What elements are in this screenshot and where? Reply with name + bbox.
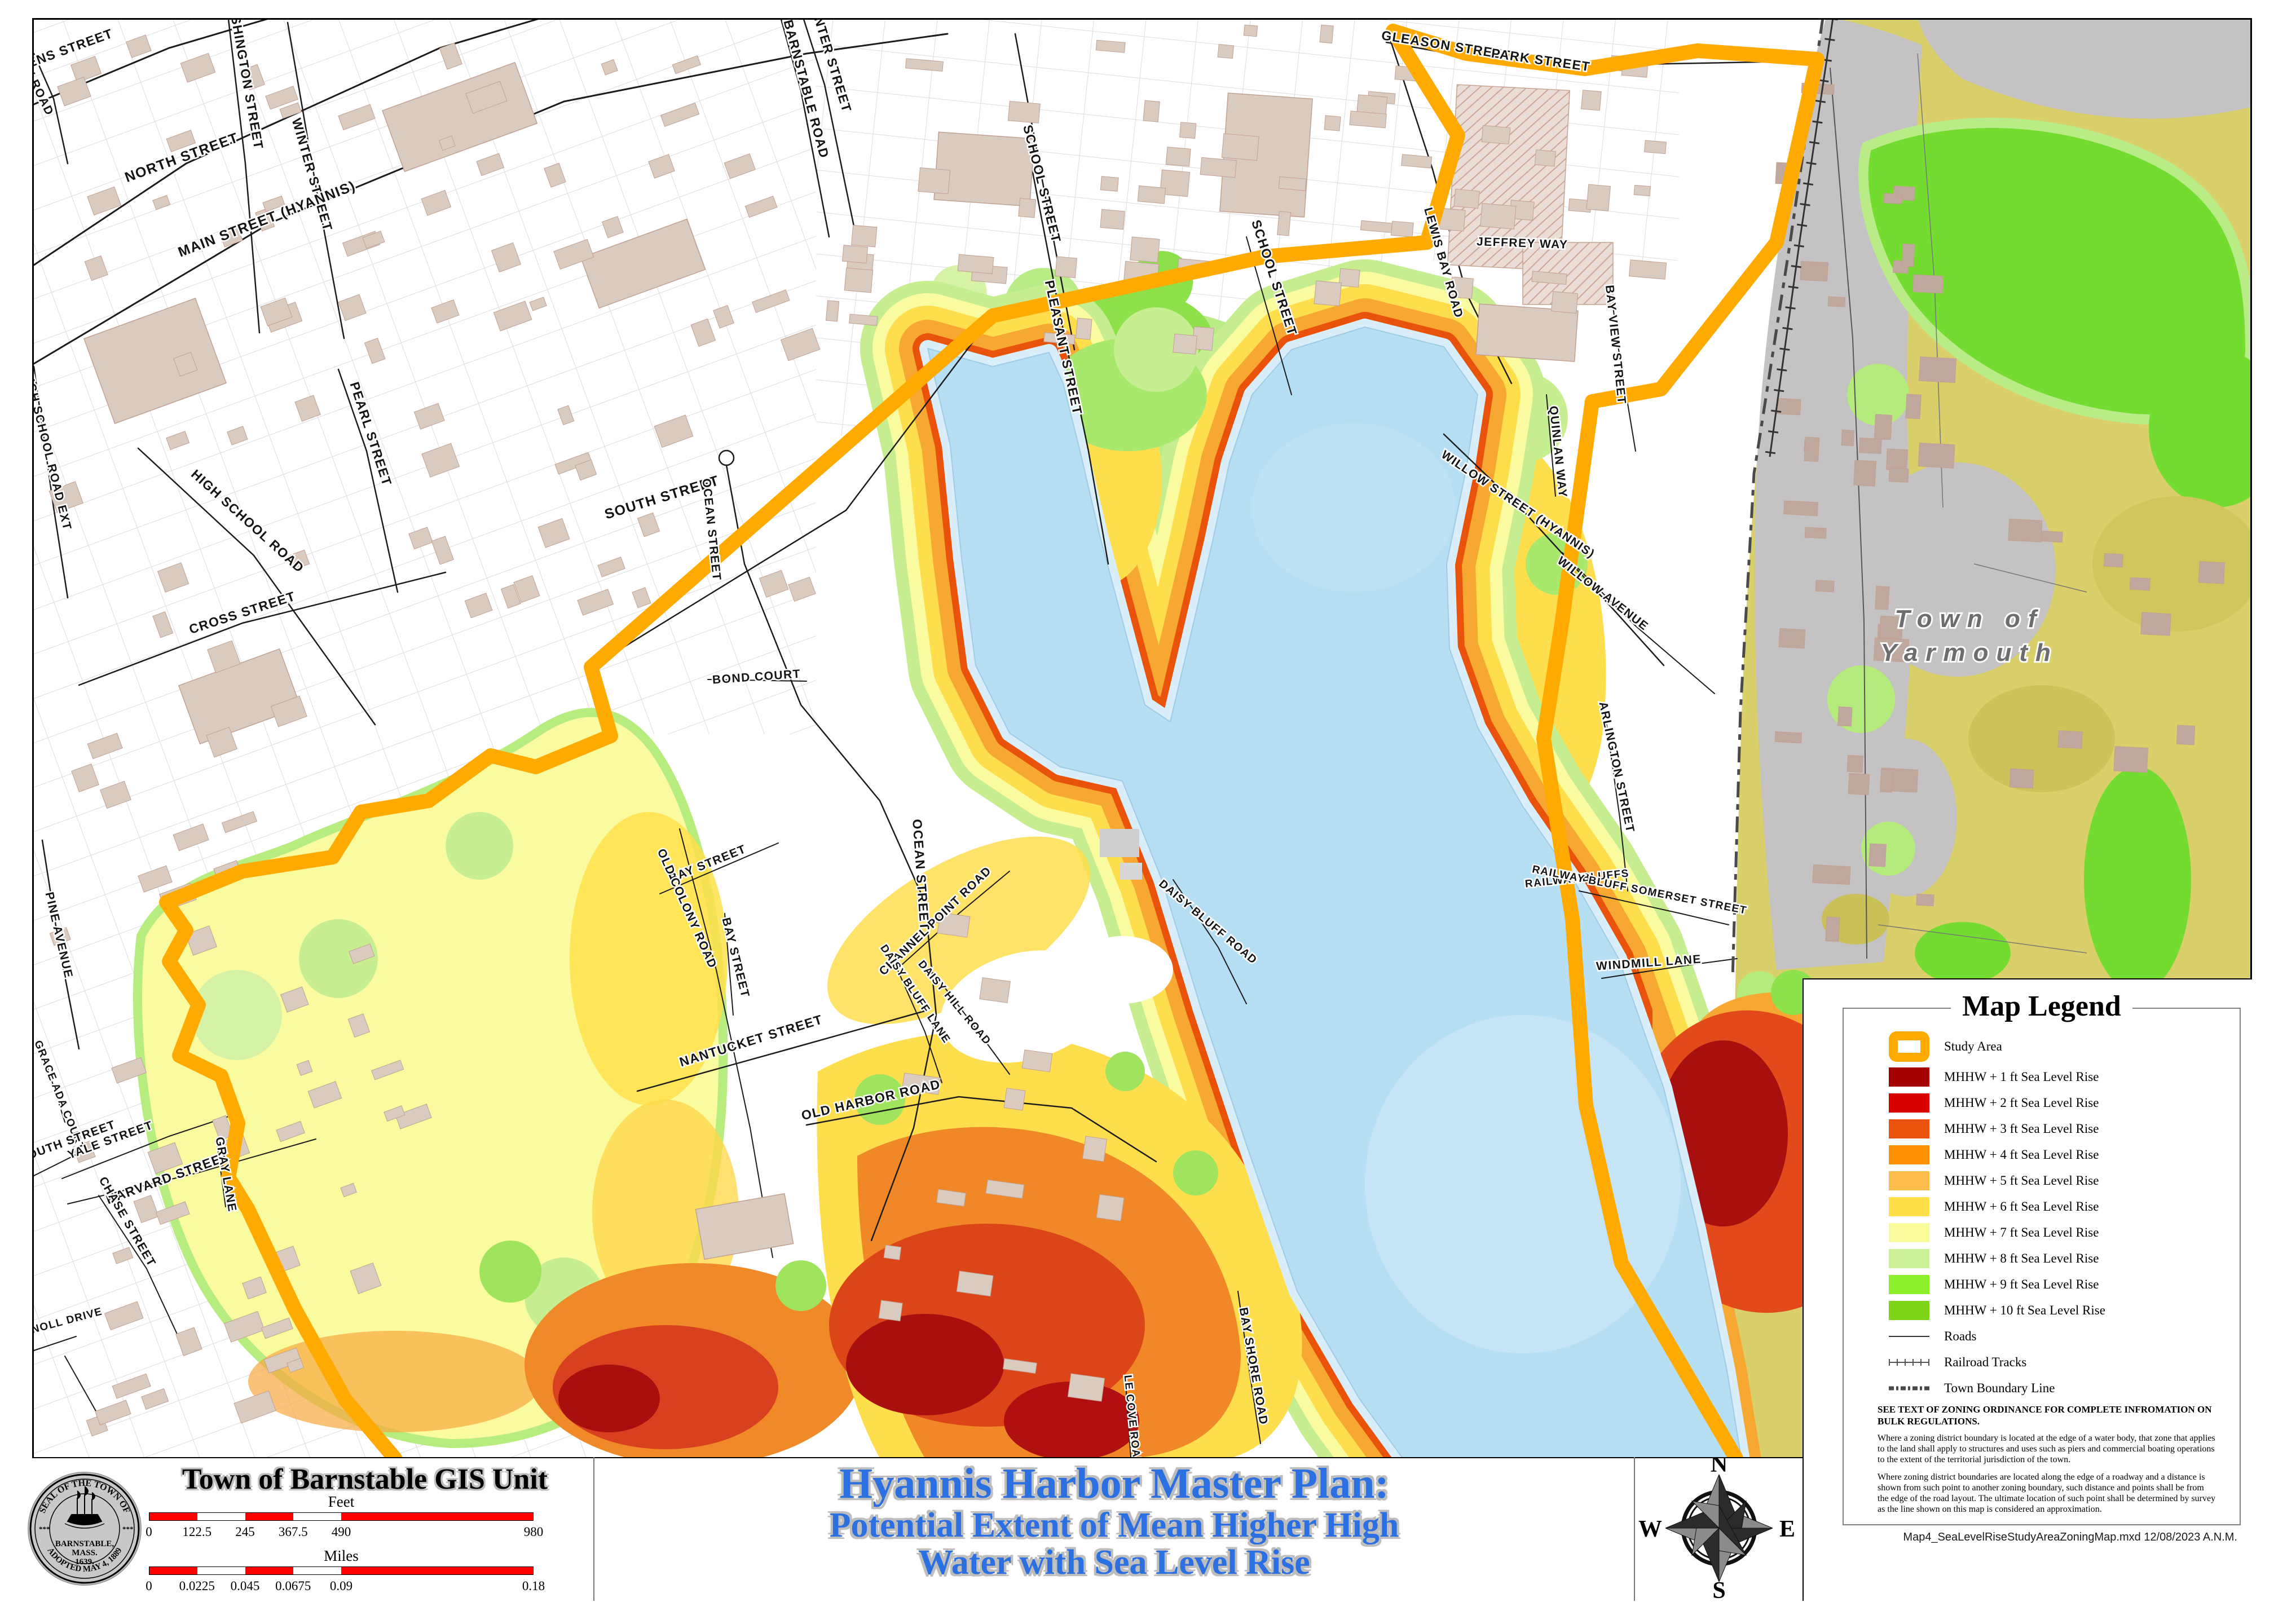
legend-swatch-fill xyxy=(1889,1067,1929,1087)
legend-item-label: MHHW + 9 ft Sea Level Rise xyxy=(1944,1277,2099,1292)
building xyxy=(1143,100,1160,122)
legend-swatch-fill xyxy=(1889,1223,1929,1242)
legend-item-label: MHHW + 7 ft Sea Level Rise xyxy=(1944,1225,2099,1240)
building xyxy=(1815,580,1834,592)
map-title-line-3: Water with Sea Level Rise xyxy=(594,1544,1634,1581)
scalebar-segment xyxy=(341,1567,533,1574)
legend-item-label: MHHW + 6 ft Sea Level Rise xyxy=(1944,1199,2099,1214)
building xyxy=(1314,281,1341,306)
building xyxy=(1100,209,1125,230)
gis-unit-panel: Town of Barnstable GIS Unit SEAL OF THE … xyxy=(32,1457,593,1601)
scalebar-segment xyxy=(341,1513,533,1520)
building xyxy=(1629,260,1667,279)
building xyxy=(1645,140,1667,154)
compass-n: N xyxy=(1711,1457,1727,1477)
building xyxy=(879,1300,902,1321)
legend-item-label: MHHW + 2 ft Sea Level Rise xyxy=(1944,1096,2099,1110)
legend-item: Study Area xyxy=(1844,1029,2240,1064)
town-area-label: Yarmouth xyxy=(1880,639,2059,667)
legend-swatch-fill xyxy=(1889,1275,1929,1294)
legend-swatch-fill xyxy=(1889,1249,1929,1268)
seal-line-2: MASS. xyxy=(72,1548,98,1557)
building xyxy=(1076,318,1092,339)
building xyxy=(1218,45,1233,59)
building xyxy=(1277,211,1291,236)
building xyxy=(980,978,1010,1003)
building xyxy=(1887,449,1908,471)
scalebar-segment xyxy=(197,1513,245,1520)
building xyxy=(1869,844,1887,867)
legend-swatch-townline xyxy=(1889,1383,1929,1394)
building xyxy=(1779,629,1805,648)
building xyxy=(2104,553,2123,567)
legend-item-label: MHHW + 1 ft Sea Level Rise xyxy=(1944,1070,2099,1084)
building xyxy=(1880,769,1893,792)
scalebar-tick-label: 0.045 xyxy=(231,1579,260,1594)
building xyxy=(2176,725,2195,745)
legend-item-label: Town Boundary Line xyxy=(1944,1381,2055,1396)
legend-swatch-fill xyxy=(1889,1145,1929,1164)
building xyxy=(1581,90,1602,111)
scalebar-miles xyxy=(149,1566,534,1575)
legend-item: MHHW + 7 ft Sea Level Rise xyxy=(1844,1220,2240,1246)
building xyxy=(1082,1136,1107,1162)
building xyxy=(1826,917,1840,942)
legend-title: Map Legend xyxy=(1951,990,2132,1023)
building xyxy=(844,268,872,293)
building xyxy=(1916,894,1934,906)
building xyxy=(2008,519,2042,542)
scalebar-tick-label: 0.0675 xyxy=(275,1579,311,1594)
scalebar-tick-label: 0.0225 xyxy=(179,1579,215,1594)
building xyxy=(884,1245,901,1260)
building xyxy=(1222,134,1259,161)
legend-item-label: MHHW + 8 ft Sea Level Rise xyxy=(1944,1251,2099,1266)
building xyxy=(843,245,868,263)
building xyxy=(1008,101,1040,123)
building xyxy=(957,1271,993,1296)
legend-item: MHHW + 5 ft Sea Level Rise xyxy=(1844,1168,2240,1194)
legend-item-label: MHHW + 10 ft Sea Level Rise xyxy=(1944,1303,2105,1318)
building xyxy=(1828,297,1845,307)
building xyxy=(1859,438,1881,454)
legend-item: Roads xyxy=(1844,1323,2240,1349)
scalebar-tick-label: 0 xyxy=(146,1525,152,1539)
compass-w: W xyxy=(1638,1516,1662,1542)
building xyxy=(1279,176,1306,191)
legend-swatch-fill xyxy=(1889,1093,1929,1113)
building xyxy=(1902,244,1915,267)
building xyxy=(1339,268,1360,287)
building xyxy=(1847,755,1863,772)
building xyxy=(2114,747,2148,773)
building xyxy=(1854,460,1876,486)
legend-item: MHHW + 2 ft Sea Level Rise xyxy=(1844,1090,2240,1116)
building xyxy=(1480,204,1516,230)
building xyxy=(958,254,994,273)
building xyxy=(1096,40,1125,52)
scalebar-tick-label: 0.09 xyxy=(330,1579,352,1594)
scalebar-segment xyxy=(245,1513,293,1520)
building xyxy=(1130,237,1160,262)
building xyxy=(1402,155,1432,168)
building xyxy=(1919,357,1956,383)
building xyxy=(826,301,839,321)
building xyxy=(1841,430,1854,445)
compass-star xyxy=(1665,1475,1773,1582)
building xyxy=(1482,125,1510,144)
building xyxy=(1180,122,1196,139)
compass-e: E xyxy=(1779,1516,1795,1542)
legend-note-heading: SEE TEXT OF ZONING ORDINANCE FOR COMPLET… xyxy=(1878,1404,2216,1427)
legend-swatch-fill xyxy=(1889,1197,1929,1216)
legend-swatch-road xyxy=(1889,1331,1929,1342)
scalebar-tick-label: 122.5 xyxy=(182,1525,211,1539)
scalebar-segment xyxy=(149,1513,197,1520)
building xyxy=(1889,468,1909,482)
building xyxy=(1800,261,1828,281)
legend-item: MHHW + 4 ft Sea Level Rise xyxy=(1844,1142,2240,1168)
building xyxy=(1784,501,1818,516)
legend-items: Study AreaMHHW + 1 ft Sea Level RiseMHHW… xyxy=(1844,1029,2240,1401)
scalebar-tick-label: 245 xyxy=(235,1525,255,1539)
building xyxy=(852,225,877,247)
building xyxy=(1535,150,1555,166)
seal-stars-right: *** xyxy=(122,1525,134,1533)
legend-notes: SEE TEXT OF ZONING ORDINANCE FOR COMPLET… xyxy=(1878,1404,2216,1521)
building xyxy=(1805,527,1826,539)
building xyxy=(2198,562,2224,584)
scalebar-feet-unit: Feet xyxy=(149,1493,534,1511)
legend-item-label: MHHW + 5 ft Sea Level Rise xyxy=(1944,1173,2099,1188)
building xyxy=(1813,865,1850,885)
scalebar-tick-label: 0 xyxy=(146,1579,152,1594)
legend-note-1: Where a zoning district boundary is loca… xyxy=(1878,1433,2216,1465)
legend-item: MHHW + 8 ft Sea Level Rise xyxy=(1844,1246,2240,1272)
map-document-footer: Map4_SeaLevelRiseStudyAreaZoningMap.mxd … xyxy=(1903,1531,2237,1544)
legend-swatch-rail xyxy=(1889,1357,1929,1368)
legend-item: MHHW + 6 ft Sea Level Rise xyxy=(1844,1194,2240,1220)
seal-line-3: 1639. xyxy=(75,1557,94,1566)
legend-item-label: MHHW + 4 ft Sea Level Rise xyxy=(1944,1148,2099,1162)
scalebar-tick-label: 367.5 xyxy=(279,1525,308,1539)
building xyxy=(1100,176,1118,192)
legend-note-2: Where zoning district boundaries are loc… xyxy=(1878,1472,2216,1515)
building xyxy=(918,167,950,194)
building xyxy=(1913,275,1944,293)
legend-item-label: Study Area xyxy=(1944,1039,2002,1054)
legend-item: MHHW + 10 ft Sea Level Rise xyxy=(1844,1298,2240,1323)
scalebar-segment xyxy=(293,1513,341,1520)
building xyxy=(1173,334,1197,354)
building xyxy=(1019,198,1036,218)
building xyxy=(1391,221,1414,237)
legend-item: MHHW + 9 ft Sea Level Rise xyxy=(1844,1272,2240,1298)
building xyxy=(1874,414,1892,440)
scalebar-tick-label: 490 xyxy=(332,1525,351,1539)
map-title-line-2: Potential Extent of Mean Higher High xyxy=(594,1507,1634,1544)
legend-item-label: MHHW + 3 ft Sea Level Rise xyxy=(1944,1122,2099,1136)
compass-panel: N S E W xyxy=(1635,1457,1803,1601)
building xyxy=(1906,394,1922,419)
building xyxy=(1324,116,1341,131)
legend-box: Map Legend Study AreaMHHW + 1 ft Sea Lev… xyxy=(1843,1008,2241,1525)
building xyxy=(1055,257,1077,278)
building xyxy=(1634,185,1650,196)
scalebar-segment xyxy=(149,1567,197,1574)
building xyxy=(1775,732,1801,743)
legend-item: Railroad Tracks xyxy=(1844,1349,2240,1375)
building xyxy=(1552,292,1578,314)
building xyxy=(1320,25,1333,43)
map-title-panel: Hyannis Harbor Master Plan: Potential Ex… xyxy=(594,1457,1634,1601)
building xyxy=(1096,1194,1124,1221)
scalebar-tick-label: 0.18 xyxy=(522,1579,545,1594)
building xyxy=(1200,157,1236,178)
building xyxy=(1022,1050,1052,1072)
scalebar-segment xyxy=(293,1567,341,1574)
legend-item: MHHW + 3 ft Sea Level Rise xyxy=(1844,1116,2240,1142)
legend-item: Town Boundary Line xyxy=(1844,1375,2240,1401)
legend-swatch-study xyxy=(1889,1031,1929,1062)
building xyxy=(2058,731,2082,749)
town-area-label: Town of xyxy=(1895,605,2044,633)
building xyxy=(1138,186,1165,204)
scalebar-tick-label: 980 xyxy=(524,1525,544,1539)
page: { "map": { "street_labels": [ {"t":"MURP… xyxy=(0,0,2274,1624)
building xyxy=(1004,1088,1025,1110)
legend-item-label: Roads xyxy=(1944,1329,1977,1344)
town-seal: SEAL OF THE TOWN OF ADOPTED MAY 4, 1889 … xyxy=(25,1469,144,1588)
building xyxy=(2141,612,2171,636)
building xyxy=(1350,111,1386,128)
legend-item-label: Railroad Tracks xyxy=(1944,1355,2026,1370)
building xyxy=(1838,707,1852,726)
building xyxy=(1166,147,1191,166)
seal-line-1: BARNSTABLE, xyxy=(55,1539,114,1548)
building xyxy=(1804,437,1819,462)
scalebar-segment xyxy=(245,1567,293,1574)
building xyxy=(1454,189,1479,208)
scalebar-segment xyxy=(197,1567,245,1574)
building xyxy=(2130,577,2150,590)
legend-item: MHHW + 1 ft Sea Level Rise xyxy=(1844,1064,2240,1090)
building xyxy=(1884,193,1902,204)
legend-swatch-fill xyxy=(1889,1171,1929,1190)
building xyxy=(1875,586,1889,610)
gis-unit-title: Town of Barnstable GIS Unit xyxy=(134,1463,596,1496)
map-title-line-1: Hyannis Harbor Master Plan: xyxy=(594,1460,1634,1507)
building xyxy=(1068,1374,1104,1401)
building xyxy=(2009,769,2034,788)
legend-swatch-fill xyxy=(1889,1119,1929,1138)
legend-swatch-fill xyxy=(1889,1301,1929,1320)
building xyxy=(1848,773,1870,795)
seal-stars-left: *** xyxy=(39,1525,50,1533)
building xyxy=(1918,443,1955,468)
compass-rose: N S E W xyxy=(1635,1457,1803,1601)
scalebar-feet xyxy=(149,1512,534,1521)
building xyxy=(1244,25,1257,37)
building xyxy=(1586,184,1610,211)
legend-panel: Map Legend Study AreaMHHW + 1 ft Sea Lev… xyxy=(1803,978,2252,1601)
scalebar-miles-unit: Miles xyxy=(149,1547,534,1565)
compass-s: S xyxy=(1712,1578,1725,1601)
